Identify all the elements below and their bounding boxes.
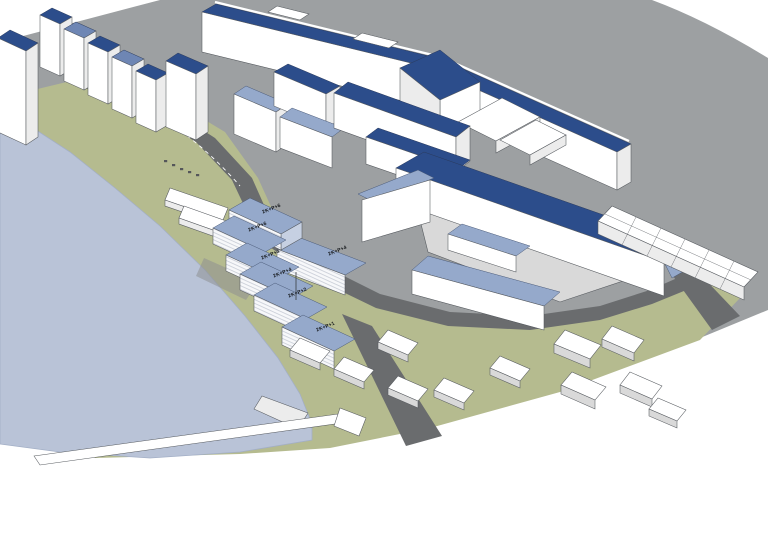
drawing-sheet: 2K+P+62K+P+62K+P+42K+P+42K+P+42K+P+22K+P… xyxy=(0,0,768,537)
title-block: MF MF arhitektura, Miha Fujs s.p., Prešn… xyxy=(0,480,768,537)
site-3d-view: 2K+P+62K+P+62K+P+42K+P+42K+P+42K+P+22K+P… xyxy=(0,0,768,480)
